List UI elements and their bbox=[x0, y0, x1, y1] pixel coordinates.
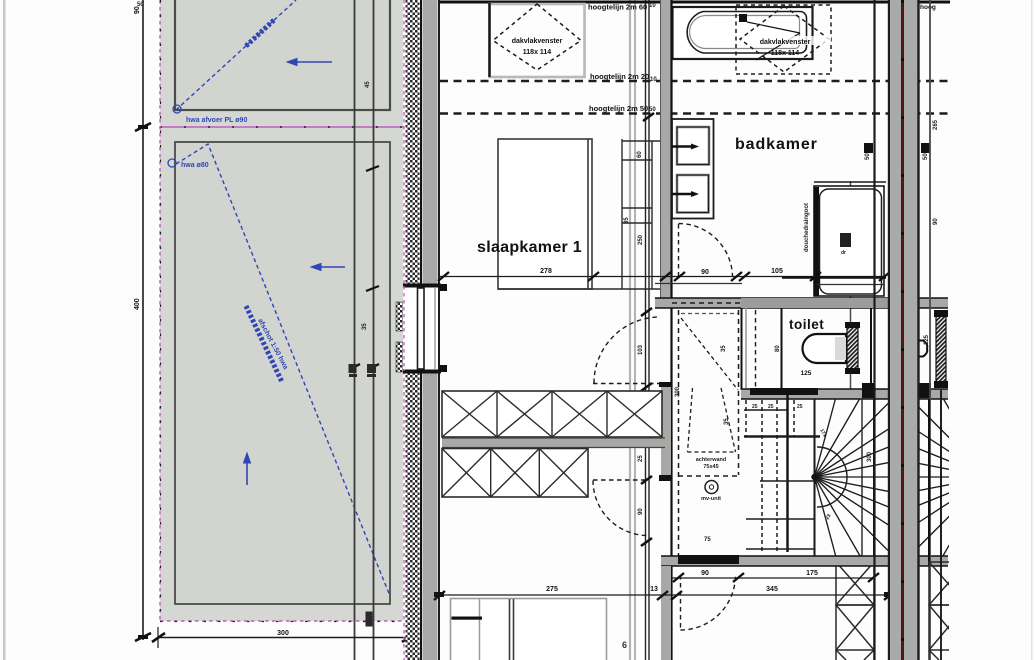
svg-text:90: 90 bbox=[638, 508, 644, 515]
svg-text:75: 75 bbox=[704, 537, 711, 543]
svg-text:35: 35 bbox=[724, 418, 730, 425]
svg-text:mv-unit: mv-unit bbox=[701, 496, 721, 502]
svg-text:dakvlakvenster: dakvlakvenster bbox=[760, 39, 811, 46]
svg-text:300: 300 bbox=[277, 630, 289, 637]
svg-text:300: 300 bbox=[675, 386, 681, 397]
svg-text:125: 125 bbox=[801, 370, 812, 377]
svg-text:hoogtelijn 2m 60: hoogtelijn 2m 60 bbox=[588, 3, 647, 12]
svg-text:45: 45 bbox=[365, 81, 371, 88]
svg-text:90: 90 bbox=[933, 218, 939, 225]
svg-text:10: 10 bbox=[649, 3, 656, 9]
svg-text:hoogtelijn 2m 50: hoogtelijn 2m 50 bbox=[589, 104, 648, 113]
svg-text:275: 275 bbox=[546, 586, 558, 593]
svg-text:80: 80 bbox=[775, 345, 781, 352]
svg-text:250: 250 bbox=[638, 234, 644, 245]
svg-text:6: 6 bbox=[622, 640, 627, 650]
svg-text:slaapkamer 1: slaapkamer 1 bbox=[477, 239, 582, 256]
svg-text:60: 60 bbox=[637, 151, 643, 158]
svg-text:25: 25 bbox=[638, 455, 644, 462]
svg-text:toilet: toilet bbox=[789, 317, 824, 332]
svg-text:105: 105 bbox=[771, 268, 783, 275]
svg-text:35: 35 bbox=[721, 345, 727, 352]
svg-text:hwa afvoer PL ø90: hwa afvoer PL ø90 bbox=[186, 117, 247, 124]
svg-text:35: 35 bbox=[624, 217, 630, 224]
svg-text:dr: dr bbox=[841, 250, 846, 256]
svg-text:50: 50 bbox=[137, 2, 144, 8]
svg-text:25: 25 bbox=[797, 404, 803, 410]
svg-text:badkamer: badkamer bbox=[735, 136, 818, 153]
svg-text:13: 13 bbox=[650, 586, 658, 593]
svg-text:50: 50 bbox=[923, 153, 929, 160]
svg-text:35: 35 bbox=[362, 323, 368, 330]
svg-text:25: 25 bbox=[768, 404, 774, 410]
svg-text:50: 50 bbox=[865, 153, 871, 160]
svg-text:douchedraingoot: douchedraingoot bbox=[804, 203, 810, 252]
svg-text:achterwand: achterwand bbox=[696, 457, 727, 463]
svg-text:10: 10 bbox=[650, 77, 657, 83]
svg-text:278: 278 bbox=[540, 268, 552, 275]
svg-text:90: 90 bbox=[701, 269, 709, 276]
svg-text:118x 114: 118x 114 bbox=[771, 50, 800, 57]
svg-text:400: 400 bbox=[134, 298, 141, 310]
svg-text:75x45: 75x45 bbox=[703, 464, 718, 470]
svg-text:50: 50 bbox=[649, 107, 656, 113]
svg-text:265: 265 bbox=[933, 119, 939, 130]
svg-text:hwa ø80: hwa ø80 bbox=[181, 162, 209, 169]
svg-text:118x 114: 118x 114 bbox=[523, 49, 552, 56]
svg-text:dakvlakvenster: dakvlakvenster bbox=[512, 38, 563, 45]
svg-text:300: 300 bbox=[867, 451, 873, 462]
svg-text:25: 25 bbox=[752, 404, 758, 410]
svg-text:hoogtelijn 2m 20: hoogtelijn 2m 20 bbox=[590, 72, 649, 81]
svg-text:90: 90 bbox=[701, 570, 709, 577]
svg-text:hoog: hoog bbox=[920, 4, 936, 11]
svg-text:345: 345 bbox=[766, 586, 778, 593]
svg-text:103: 103 bbox=[638, 344, 644, 355]
svg-text:125: 125 bbox=[924, 334, 930, 345]
svg-text:175: 175 bbox=[806, 570, 818, 577]
